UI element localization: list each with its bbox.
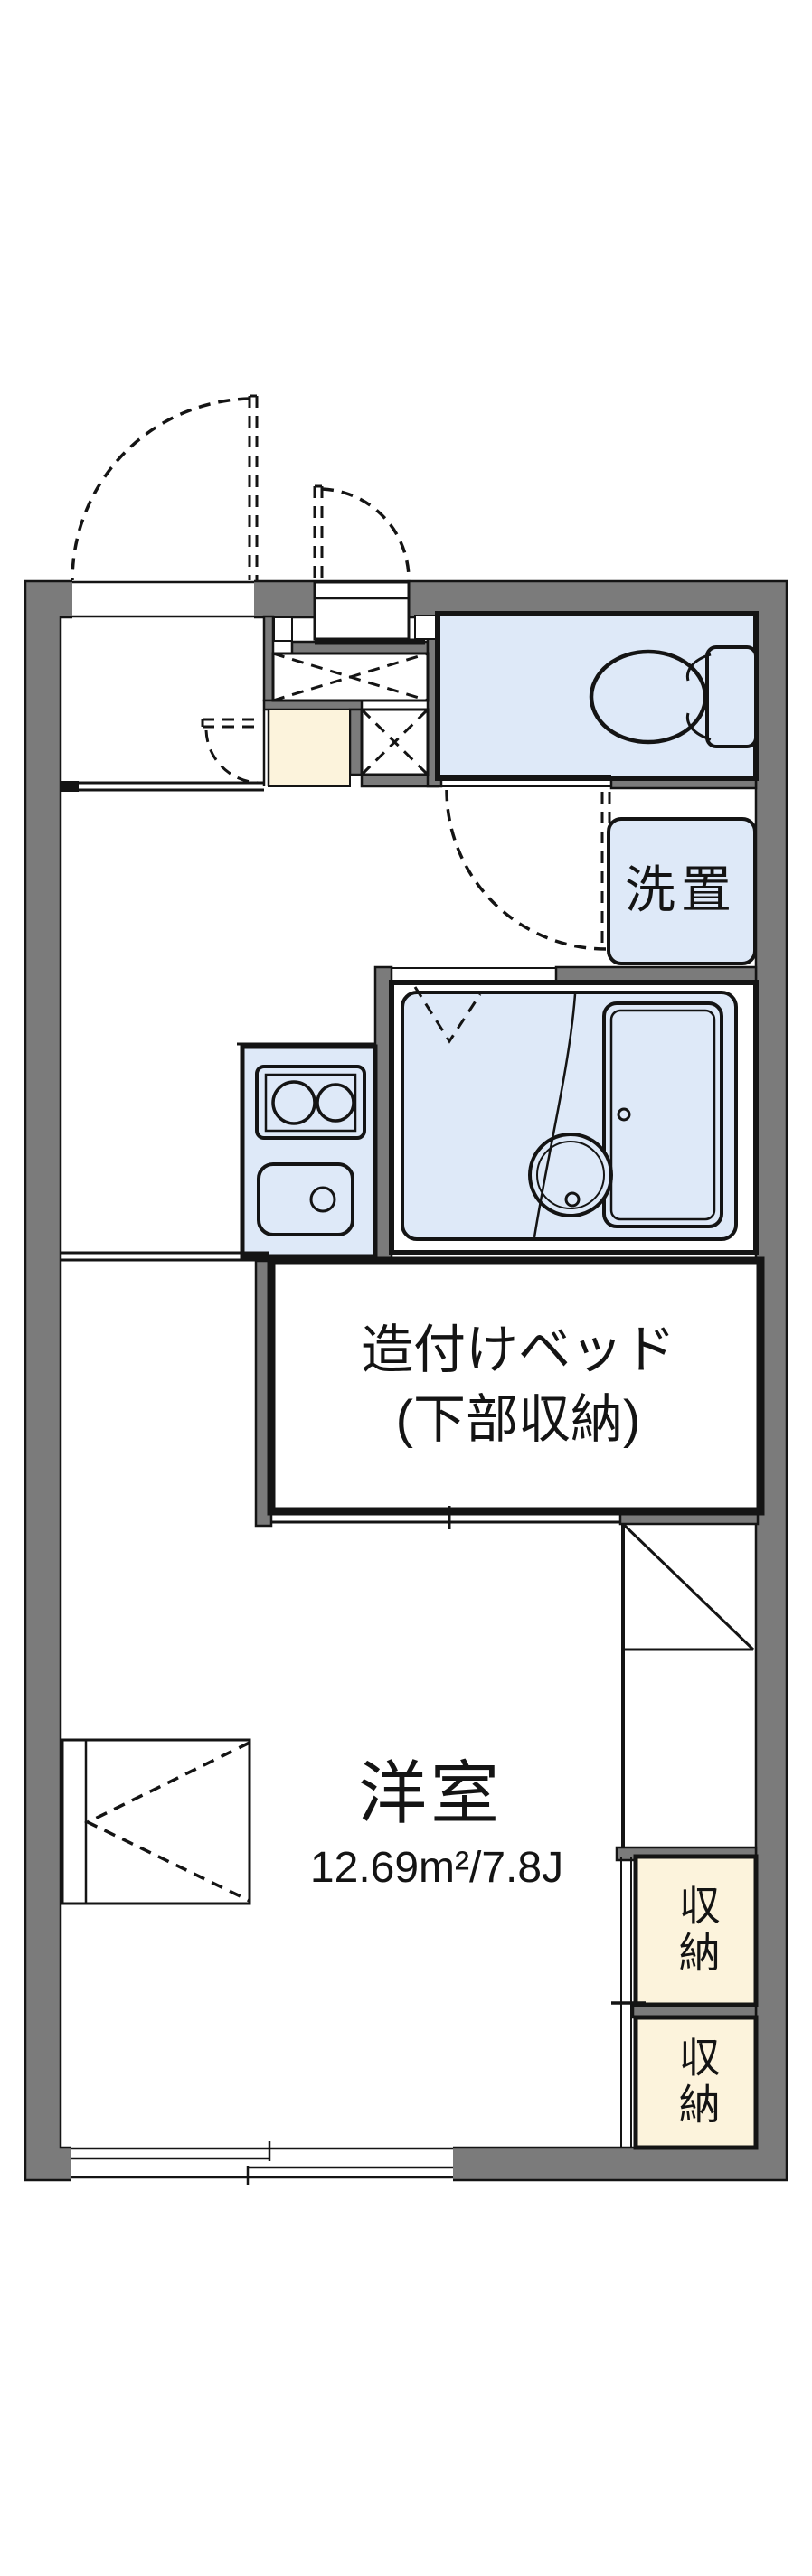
bed-label-line2: (下部収納): [396, 1387, 641, 1453]
shoe-storage-upper: [273, 653, 428, 700]
room-area-label: 12.69m²/7.8J: [310, 1841, 563, 1895]
front-door: [315, 582, 409, 639]
room-boundary-line: [61, 1253, 269, 1260]
toilet-tank: [707, 647, 756, 747]
bath-sink: [530, 1134, 611, 1216]
side-shelf-column: [623, 1524, 753, 1847]
floor-plan-drawing: [0, 0, 812, 2576]
wall-notch-right: [415, 616, 437, 639]
second-door-swing: [315, 486, 409, 580]
genkan-floor: [269, 710, 350, 786]
closet-upper-label: 収納: [670, 1884, 722, 1978]
shoe-storage-right: [362, 710, 428, 775]
entrance-opening: [72, 578, 254, 620]
stove: [257, 1067, 364, 1138]
closet-lower-label: 収納: [670, 2035, 722, 2129]
room-name-label: 洋室: [358, 1752, 503, 1838]
room-door-swing: [203, 719, 260, 783]
bathtub: [604, 1003, 722, 1227]
toilet-bowl: [591, 652, 705, 742]
laundry-label: 洗置: [625, 859, 737, 922]
burner-right: [317, 1085, 354, 1121]
entrance-door-swing: [72, 396, 257, 580]
bed-label-line1: 造付けベッド: [361, 1318, 675, 1384]
faucet: [311, 1188, 335, 1211]
burner-left: [273, 1082, 315, 1123]
floor-plan: 洗置 造付けベッド (下部収納) 洋室 12.69m²/7.8J 収納 収納: [0, 0, 812, 2576]
kitchen-unit: [237, 1044, 375, 1256]
room-side-box: [62, 1740, 250, 1904]
wall-notch-left: [274, 617, 292, 641]
kitchen-sink: [259, 1164, 353, 1235]
bathroom: [392, 968, 756, 1253]
